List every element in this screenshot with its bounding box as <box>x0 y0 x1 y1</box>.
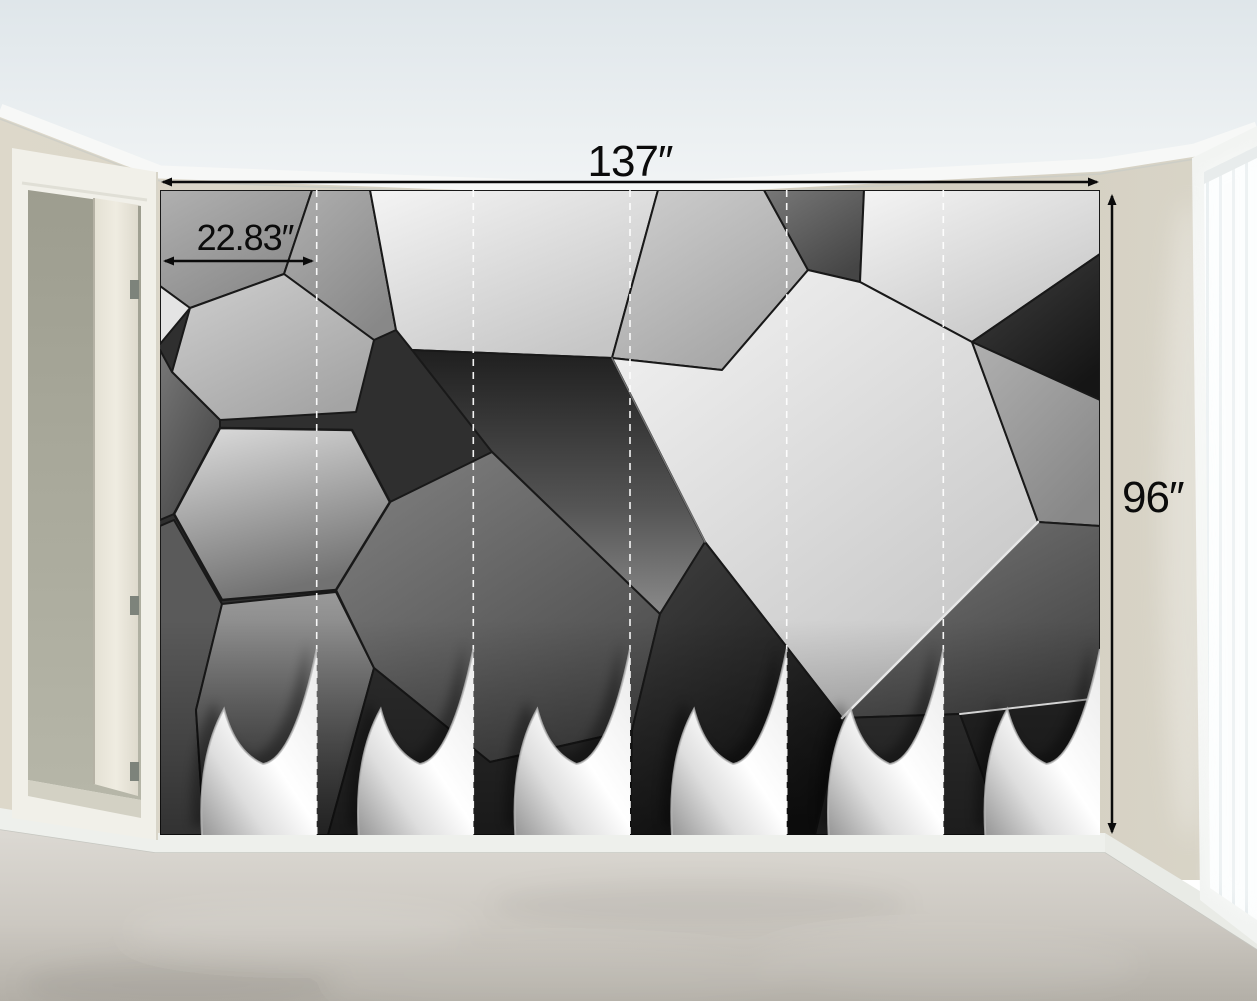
carpet-floor <box>0 830 1257 1001</box>
room-scene: 137″ 96″ 22.83″ <box>0 0 1257 1001</box>
wall-light-bleed <box>1162 200 1214 840</box>
mural-artwork <box>160 190 1100 835</box>
door-hinge <box>130 280 139 299</box>
wall-mural <box>160 190 1100 835</box>
door-hinge <box>130 596 139 615</box>
door-hinge <box>130 762 139 781</box>
doorway <box>12 148 157 840</box>
